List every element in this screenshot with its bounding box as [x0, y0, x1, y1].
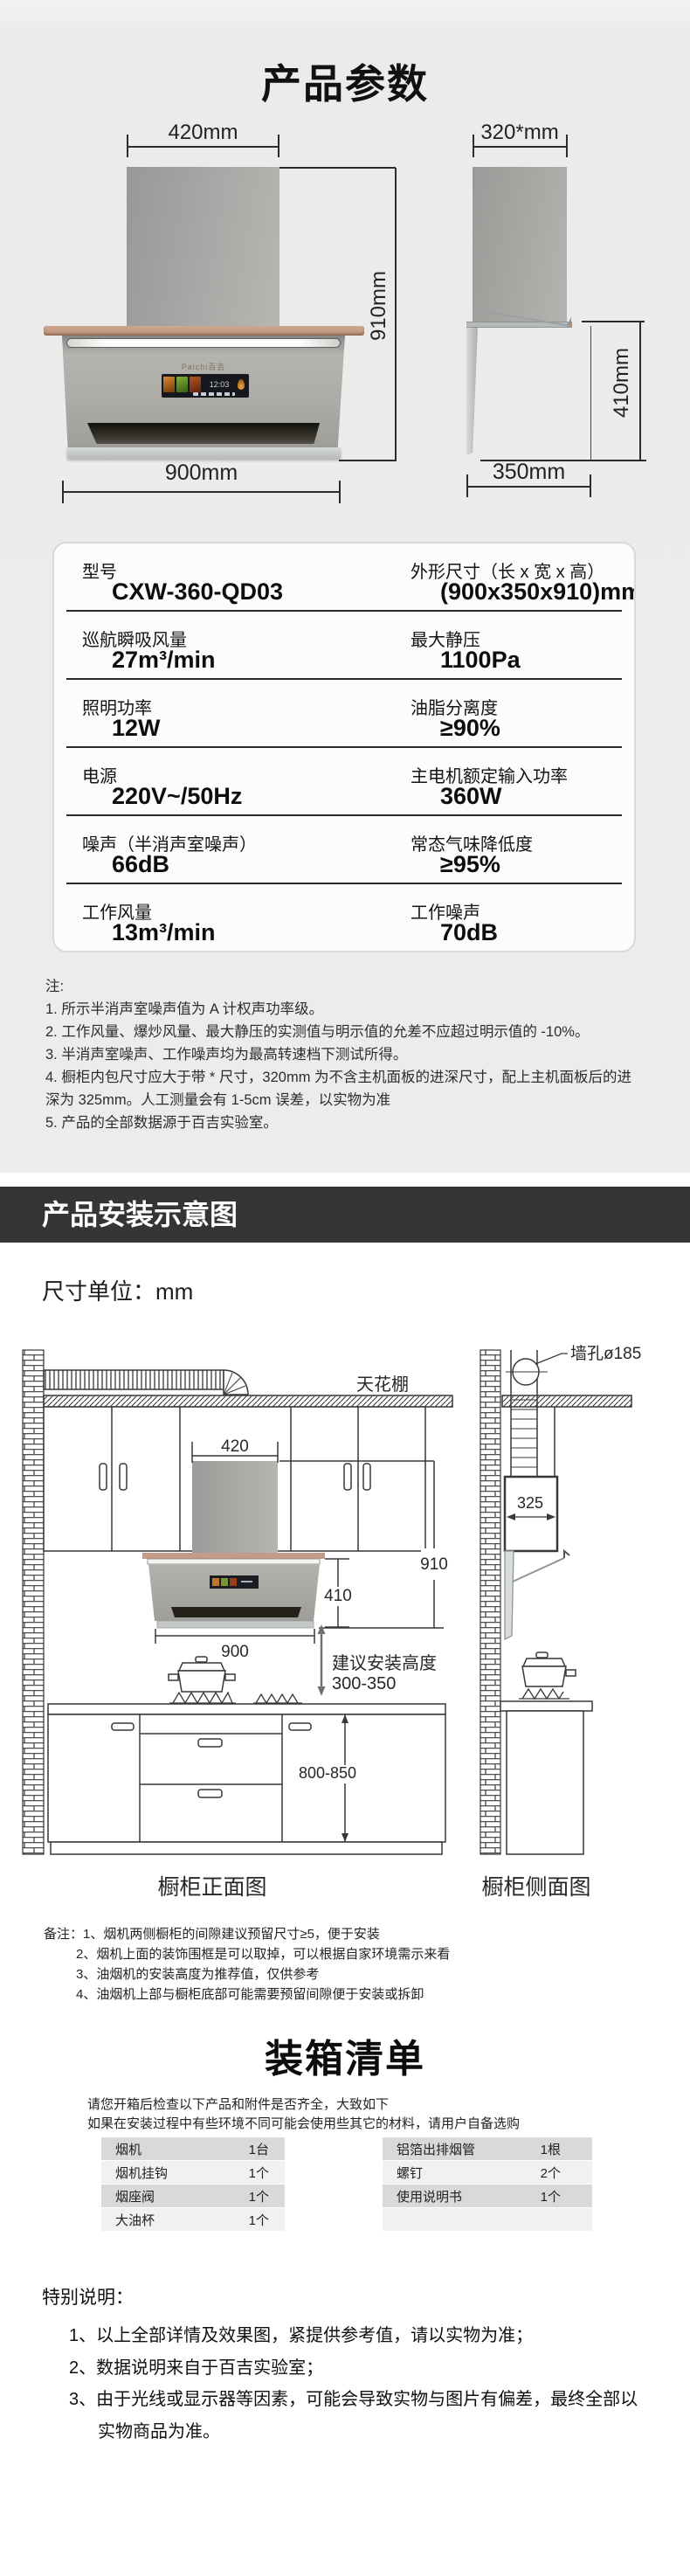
- front-width-dimension: 900mm: [62, 460, 341, 486]
- packing-table-right: 铝箔出排烟管 1根 螺钉 2个 使用说明书 1个: [383, 2137, 592, 2232]
- item-qty: 1个: [249, 2211, 269, 2229]
- packing-intro-line: 如果在安装过程中有些环境不同可能会使用些其它的材料，请用户自备选购: [87, 2115, 520, 2134]
- spec-value: CXW-360-QD03: [112, 578, 283, 606]
- special-note-item: 2、数据说明来自于百吉实验室；: [42, 2352, 653, 2385]
- hood-chimney-front: [127, 167, 279, 328]
- display-clock: 12:03: [201, 380, 238, 389]
- special-notes-title: 特别说明：: [42, 2283, 653, 2309]
- special-note-item: 实物商品为准。: [42, 2416, 653, 2448]
- depth-label: 325: [517, 1494, 543, 1512]
- item-qty: 2个: [541, 2164, 561, 2182]
- dim-tick: [473, 135, 474, 157]
- spec-value: ≥95%: [440, 851, 500, 878]
- packing-row: [383, 2208, 592, 2231]
- side-depth-dimension: 350mm: [466, 460, 591, 485]
- hood-chimney-side: [473, 167, 567, 322]
- side-depth-dim-line: [467, 486, 590, 488]
- packing-row: 螺钉 2个: [383, 2161, 592, 2184]
- dim-tick: [278, 135, 279, 157]
- hood-height-label: 910: [420, 1555, 448, 1574]
- packing-row: 大油杯 1个: [101, 2208, 285, 2231]
- packing-intro-line: 请您开箱后检查以下产品和附件是否齐全，大致如下: [87, 2095, 520, 2115]
- item-qty: 1台: [249, 2140, 269, 2158]
- side-top-dim-line: [473, 146, 567, 148]
- note-item: 1. 所示半消声室噪声值为 A 计权声功率级。: [45, 998, 632, 1021]
- section-banner: 产品安装示意图: [0, 1187, 690, 1243]
- spec-notes: 注: 1. 所示半消声室噪声值为 A 计权声功率级。 2. 工作风量、爆炒风量、…: [45, 975, 632, 1134]
- item-name: 螺钉: [397, 2164, 423, 2182]
- ceiling-label: 天花棚: [356, 1375, 409, 1395]
- spec-value: 13m³/min: [112, 919, 216, 946]
- height-dim-bottom-tick: [339, 460, 397, 461]
- spec-value: (900x350x910)mm: [440, 578, 636, 606]
- front-view-caption: 橱柜正面图: [157, 1875, 266, 1900]
- height-dim-top-tick: [279, 167, 396, 169]
- side-height-dimension: 410mm: [610, 348, 634, 418]
- install-remarks: 备注：1、烟机两侧橱柜的间隙建议预留尺寸≥5，便于安装 2、烟机上面的装饰围框是…: [44, 1924, 655, 2005]
- remark-item: 备注：1、烟机两侧橱柜的间隙建议预留尺寸≥5，便于安装: [44, 1924, 655, 1944]
- packing-intro: 请您开箱后检查以下产品和附件是否齐全，大致如下 如果在安装过程中有些环境不同可能…: [87, 2095, 520, 2134]
- hood-suction-slot: [87, 423, 320, 444]
- product-detail-page: 产品参数 420mm Paichi百吉 12:03 900mm 910mm 32…: [0, 0, 690, 2576]
- hood-body-front: Paichi百吉 12:03: [58, 336, 349, 449]
- flame-icon: [238, 379, 245, 390]
- dim-tick: [566, 135, 568, 157]
- hood-base-panel: [67, 447, 341, 459]
- spec-table: 型号 CXW-360-QD03 外形尺寸（长 x 宽 x 高） (900x350…: [52, 542, 636, 952]
- packing-row: 烟座阀 1个: [101, 2185, 285, 2207]
- side-view-lines: [480, 1350, 592, 1854]
- remark-item: 4、油烟机上部与橱柜底部可能需要预留间隙便于安装或拆卸: [44, 1984, 655, 2005]
- extension-line: [590, 326, 591, 460]
- packing-list-title: 装箱清单: [0, 2027, 690, 2083]
- unit-label: 尺寸单位：mm: [42, 1274, 193, 1306]
- special-note-item: 3、由于光线或显示器等因素，可能会导致实物与图片有偏差，最终全部以: [42, 2384, 653, 2416]
- hood-width-label: 900: [221, 1643, 249, 1661]
- packing-row: 烟机挂钩 1个: [101, 2161, 285, 2184]
- spec-value: 12W: [112, 715, 161, 742]
- note-item: 4. 橱柜内包尺寸应大于带 * 尺寸，320mm 为不含主机面板的进深尺寸，配上…: [45, 1066, 632, 1111]
- wall-hole-label: 墙孔ø185: [570, 1344, 641, 1363]
- special-notes: 特别说明： 1、以上全部详情及效果图，紧提供参考值，请以实物为准； 2、数据说明…: [42, 2283, 653, 2448]
- side-view-caption: 橱柜侧面图: [481, 1875, 590, 1900]
- depth-dim-top-tick: [582, 321, 645, 322]
- spec-value: 360W: [440, 783, 502, 810]
- item-name: 烟座阀: [115, 2187, 155, 2206]
- spec-value: 27m³/min: [112, 647, 216, 674]
- display-food-thumbnail: [163, 377, 175, 392]
- item-name: 铝箔出排烟管: [397, 2140, 475, 2158]
- front-width-dim-line: [63, 491, 340, 493]
- spec-value: ≥90%: [440, 715, 500, 742]
- spec-row: 型号 CXW-360-QD03 外形尺寸（长 x 宽 x 高） (900x350…: [54, 544, 634, 612]
- note-item: 5. 产品的全部数据源于百吉实验室。: [45, 1111, 632, 1134]
- note-item: 3. 半消声室噪声、工作噪声均为最高转速档下测试所得。: [45, 1043, 632, 1066]
- spec-value: 220V~/50Hz: [112, 783, 242, 810]
- item-qty: 1个: [249, 2164, 269, 2182]
- advise-height-value: 300-350: [332, 1674, 396, 1693]
- hood-wood-rim: [44, 326, 364, 336]
- spec-value: 1100Pa: [440, 647, 521, 674]
- notes-title: 注:: [45, 975, 632, 998]
- spec-row: 噪声（半消声室噪声） 66dB 常态气味降低度 ≥95%: [54, 816, 634, 884]
- remark-item: 2、烟机上面的装饰围框是可以取掉，可以根据自家环境需示来看: [44, 1944, 655, 1964]
- item-name: 烟机: [115, 2140, 141, 2158]
- special-note-item: 1、以上全部详情及效果图，紧提供参考值，请以实物为准；: [42, 2320, 653, 2352]
- counter-height-label: 800-850: [299, 1764, 356, 1782]
- dim-tick: [127, 135, 128, 157]
- spec-row: 电源 220V~/50Hz 主电机额定输入功率 360W: [54, 748, 634, 816]
- spec-value: 66dB: [112, 851, 169, 878]
- spec-value: 70dB: [440, 919, 498, 946]
- display-food-thumbnail: [176, 377, 188, 392]
- front-height-dimension: 910mm: [367, 271, 391, 341]
- page-title: 产品参数: [0, 52, 690, 110]
- hood-light-strip: [66, 338, 341, 348]
- dim-tick: [339, 481, 341, 503]
- dim-tick: [62, 481, 64, 503]
- packing-row: 烟机 1台: [101, 2137, 285, 2160]
- item-qty: 1个: [541, 2187, 561, 2206]
- remark-item: 3、油烟机的安装高度为推荐值，仅供参考: [44, 1964, 655, 1984]
- front-top-dim-line: [128, 146, 279, 148]
- duct-width-label: 420: [221, 1437, 249, 1456]
- spec-row: 巡航瞬吸风量 27m³/min 最大静压 1100Pa: [54, 612, 634, 680]
- front-height-dim-line: [395, 168, 397, 460]
- item-name: 使用说明书: [397, 2187, 462, 2206]
- display-food-thumbnail: [190, 377, 201, 392]
- hood-display: 12:03: [162, 374, 249, 398]
- banner-title: 产品安装示意图: [42, 1199, 238, 1230]
- packing-row: 铝箔出排烟管 1根: [383, 2137, 592, 2160]
- brand-logo: Paichi百吉: [58, 361, 349, 372]
- packing-table-left: 烟机 1台 烟机挂钩 1个 烟座阀 1个 大油杯 1个: [101, 2137, 285, 2232]
- body-height-label: 410: [324, 1587, 352, 1605]
- spec-row: 照明功率 12W 油脂分离度 ≥90%: [54, 680, 634, 748]
- side-height-dim-line: [639, 322, 641, 460]
- front-top-dimension: 420mm: [127, 121, 279, 145]
- item-qty: 1个: [249, 2187, 269, 2206]
- spec-row: 工作风量 13m³/min 工作噪声 70dB: [54, 884, 634, 952]
- dim-tick: [466, 474, 468, 497]
- item-name: 大油杯: [115, 2211, 155, 2229]
- item-qty: 1根: [541, 2140, 561, 2158]
- dim-tick: [590, 474, 591, 497]
- item-name: 烟机挂钩: [115, 2164, 168, 2182]
- note-item: 2. 工作风量、爆炒风量、最大静压的实测值与明示值的允差不应超过明示值的 -10…: [45, 1021, 632, 1043]
- packing-row: 使用说明书 1个: [383, 2185, 592, 2207]
- advise-height-label: 建议安装高度: [332, 1653, 437, 1673]
- side-top-dimension: 320*mm: [468, 121, 571, 145]
- installation-diagram: 天花棚 墙孔ø185 420 910 410 900 建议安装高度 300-35…: [0, 1328, 690, 1909]
